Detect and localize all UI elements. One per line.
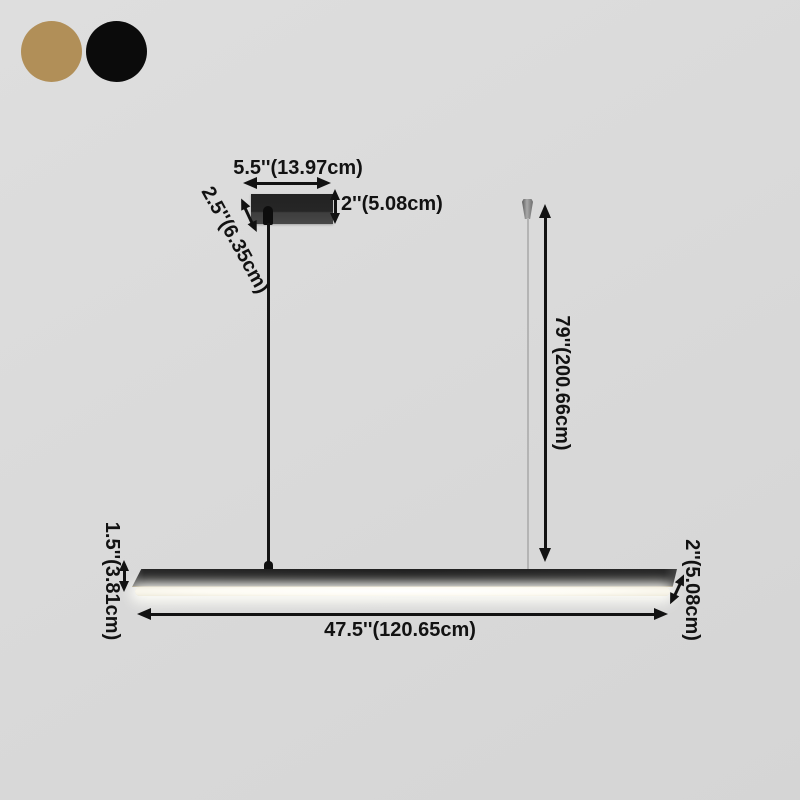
linear-light-bar bbox=[132, 569, 677, 587]
suspension-height-label: 79''(200.66cm) bbox=[552, 315, 572, 450]
canopy-width-label: 5.5''(13.97cm) bbox=[233, 158, 363, 178]
canopy-height-arrow bbox=[330, 189, 341, 224]
led-diffuser-strip bbox=[135, 587, 670, 596]
bar-depth-label: 2''(5.08cm) bbox=[682, 539, 702, 641]
bar-height-arrow bbox=[119, 560, 130, 592]
suspension-cable-right bbox=[527, 218, 529, 569]
product-dimension-diagram: 5.5''(13.97cm) 2''(5.08cm) 2.5''(6.35cm)… bbox=[0, 0, 800, 800]
canopy-height-label: 2''(5.08cm) bbox=[341, 194, 443, 214]
color-swatch-black[interactable] bbox=[86, 21, 147, 82]
color-swatch-gold[interactable] bbox=[21, 21, 82, 82]
suspension-height-arrow bbox=[539, 204, 552, 562]
bar-length-arrow bbox=[137, 608, 668, 621]
canopy-width-arrow bbox=[243, 177, 331, 190]
bar-length-label: 47.5''(120.65cm) bbox=[324, 620, 476, 640]
bar-cable-joint bbox=[264, 561, 273, 570]
cable-hanger-fitting bbox=[522, 199, 533, 219]
